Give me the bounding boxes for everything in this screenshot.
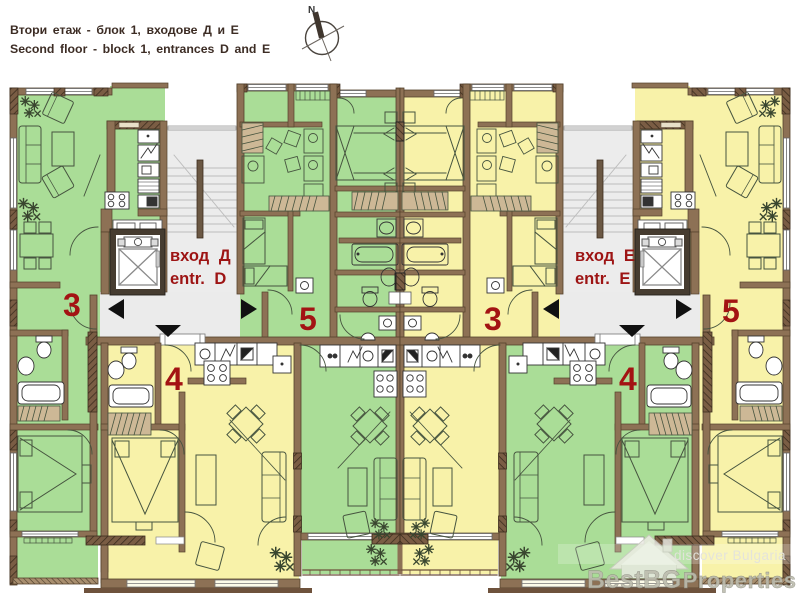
svg-text:Second floor - block 1, entran: Second floor - block 1, entrances D and … <box>10 42 270 56</box>
svg-text:4: 4 <box>165 361 183 397</box>
svg-text:3: 3 <box>484 301 502 337</box>
svg-text:вход Д: вход Д <box>170 247 231 265</box>
svg-text:discover Bulgaria: discover Bulgaria <box>674 548 786 563</box>
svg-text:entr. D: entr. D <box>170 270 226 288</box>
svg-text:BestBGProperties: BestBGProperties <box>587 566 797 594</box>
svg-text:entr. E: entr. E <box>575 270 630 288</box>
svg-text:N: N <box>308 5 315 16</box>
svg-text:4: 4 <box>619 361 637 397</box>
svg-text:5: 5 <box>299 301 317 337</box>
svg-text:3: 3 <box>63 287 81 323</box>
svg-text:вход E: вход E <box>575 247 635 265</box>
svg-text:Втори етаж - блок 1, входове Д: Втори етаж - блок 1, входове Д и Е <box>10 23 239 37</box>
svg-text:5: 5 <box>722 293 740 329</box>
